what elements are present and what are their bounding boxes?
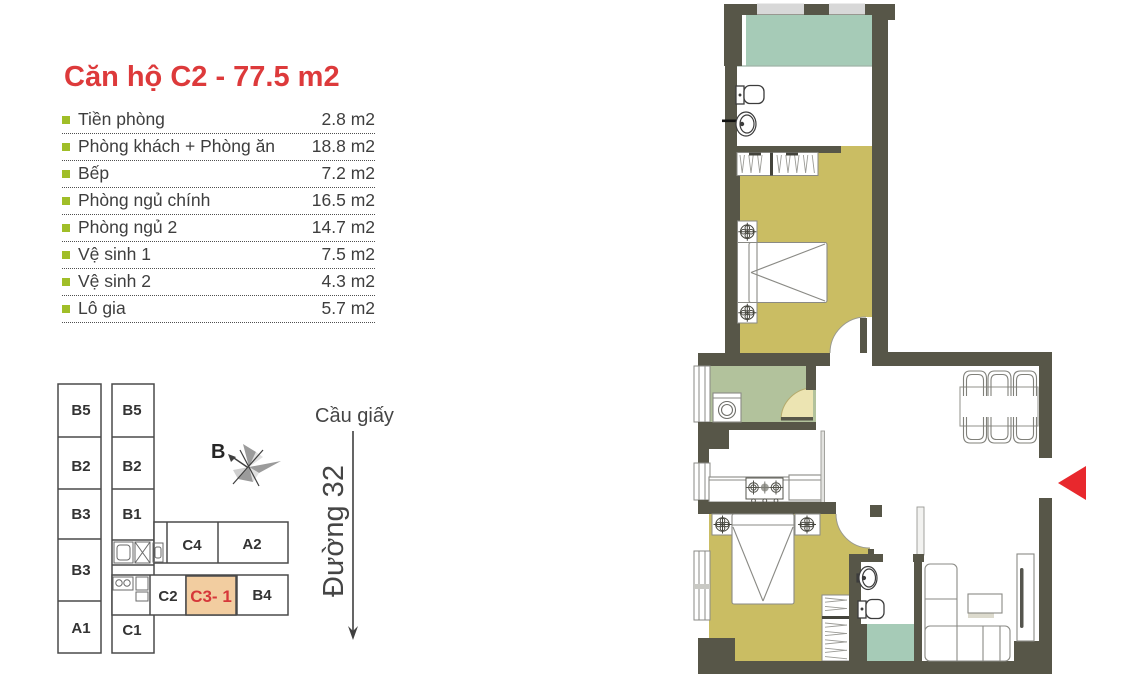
svg-text:Đường 32: Đường 32: [318, 465, 350, 597]
svg-text:B5: B5: [71, 402, 90, 419]
svg-text:B3: B3: [71, 562, 90, 579]
svg-text:A2: A2: [242, 536, 261, 553]
svg-text:B: B: [211, 441, 225, 463]
svg-text:B4: B4: [252, 587, 272, 604]
svg-text:B3: B3: [71, 506, 90, 523]
svg-text:C1: C1: [122, 622, 141, 639]
svg-text:B1: B1: [122, 506, 141, 523]
svg-text:B2: B2: [71, 458, 90, 475]
svg-text:A1: A1: [71, 620, 90, 637]
svg-text:C3- 1: C3- 1: [190, 587, 232, 606]
svg-text:C4: C4: [182, 537, 202, 554]
svg-text:B5: B5: [122, 402, 141, 419]
svg-text:B2: B2: [122, 458, 141, 475]
svg-text:Cầu giấy: Cầu giấy: [315, 405, 394, 427]
svg-text:C2: C2: [158, 588, 177, 605]
